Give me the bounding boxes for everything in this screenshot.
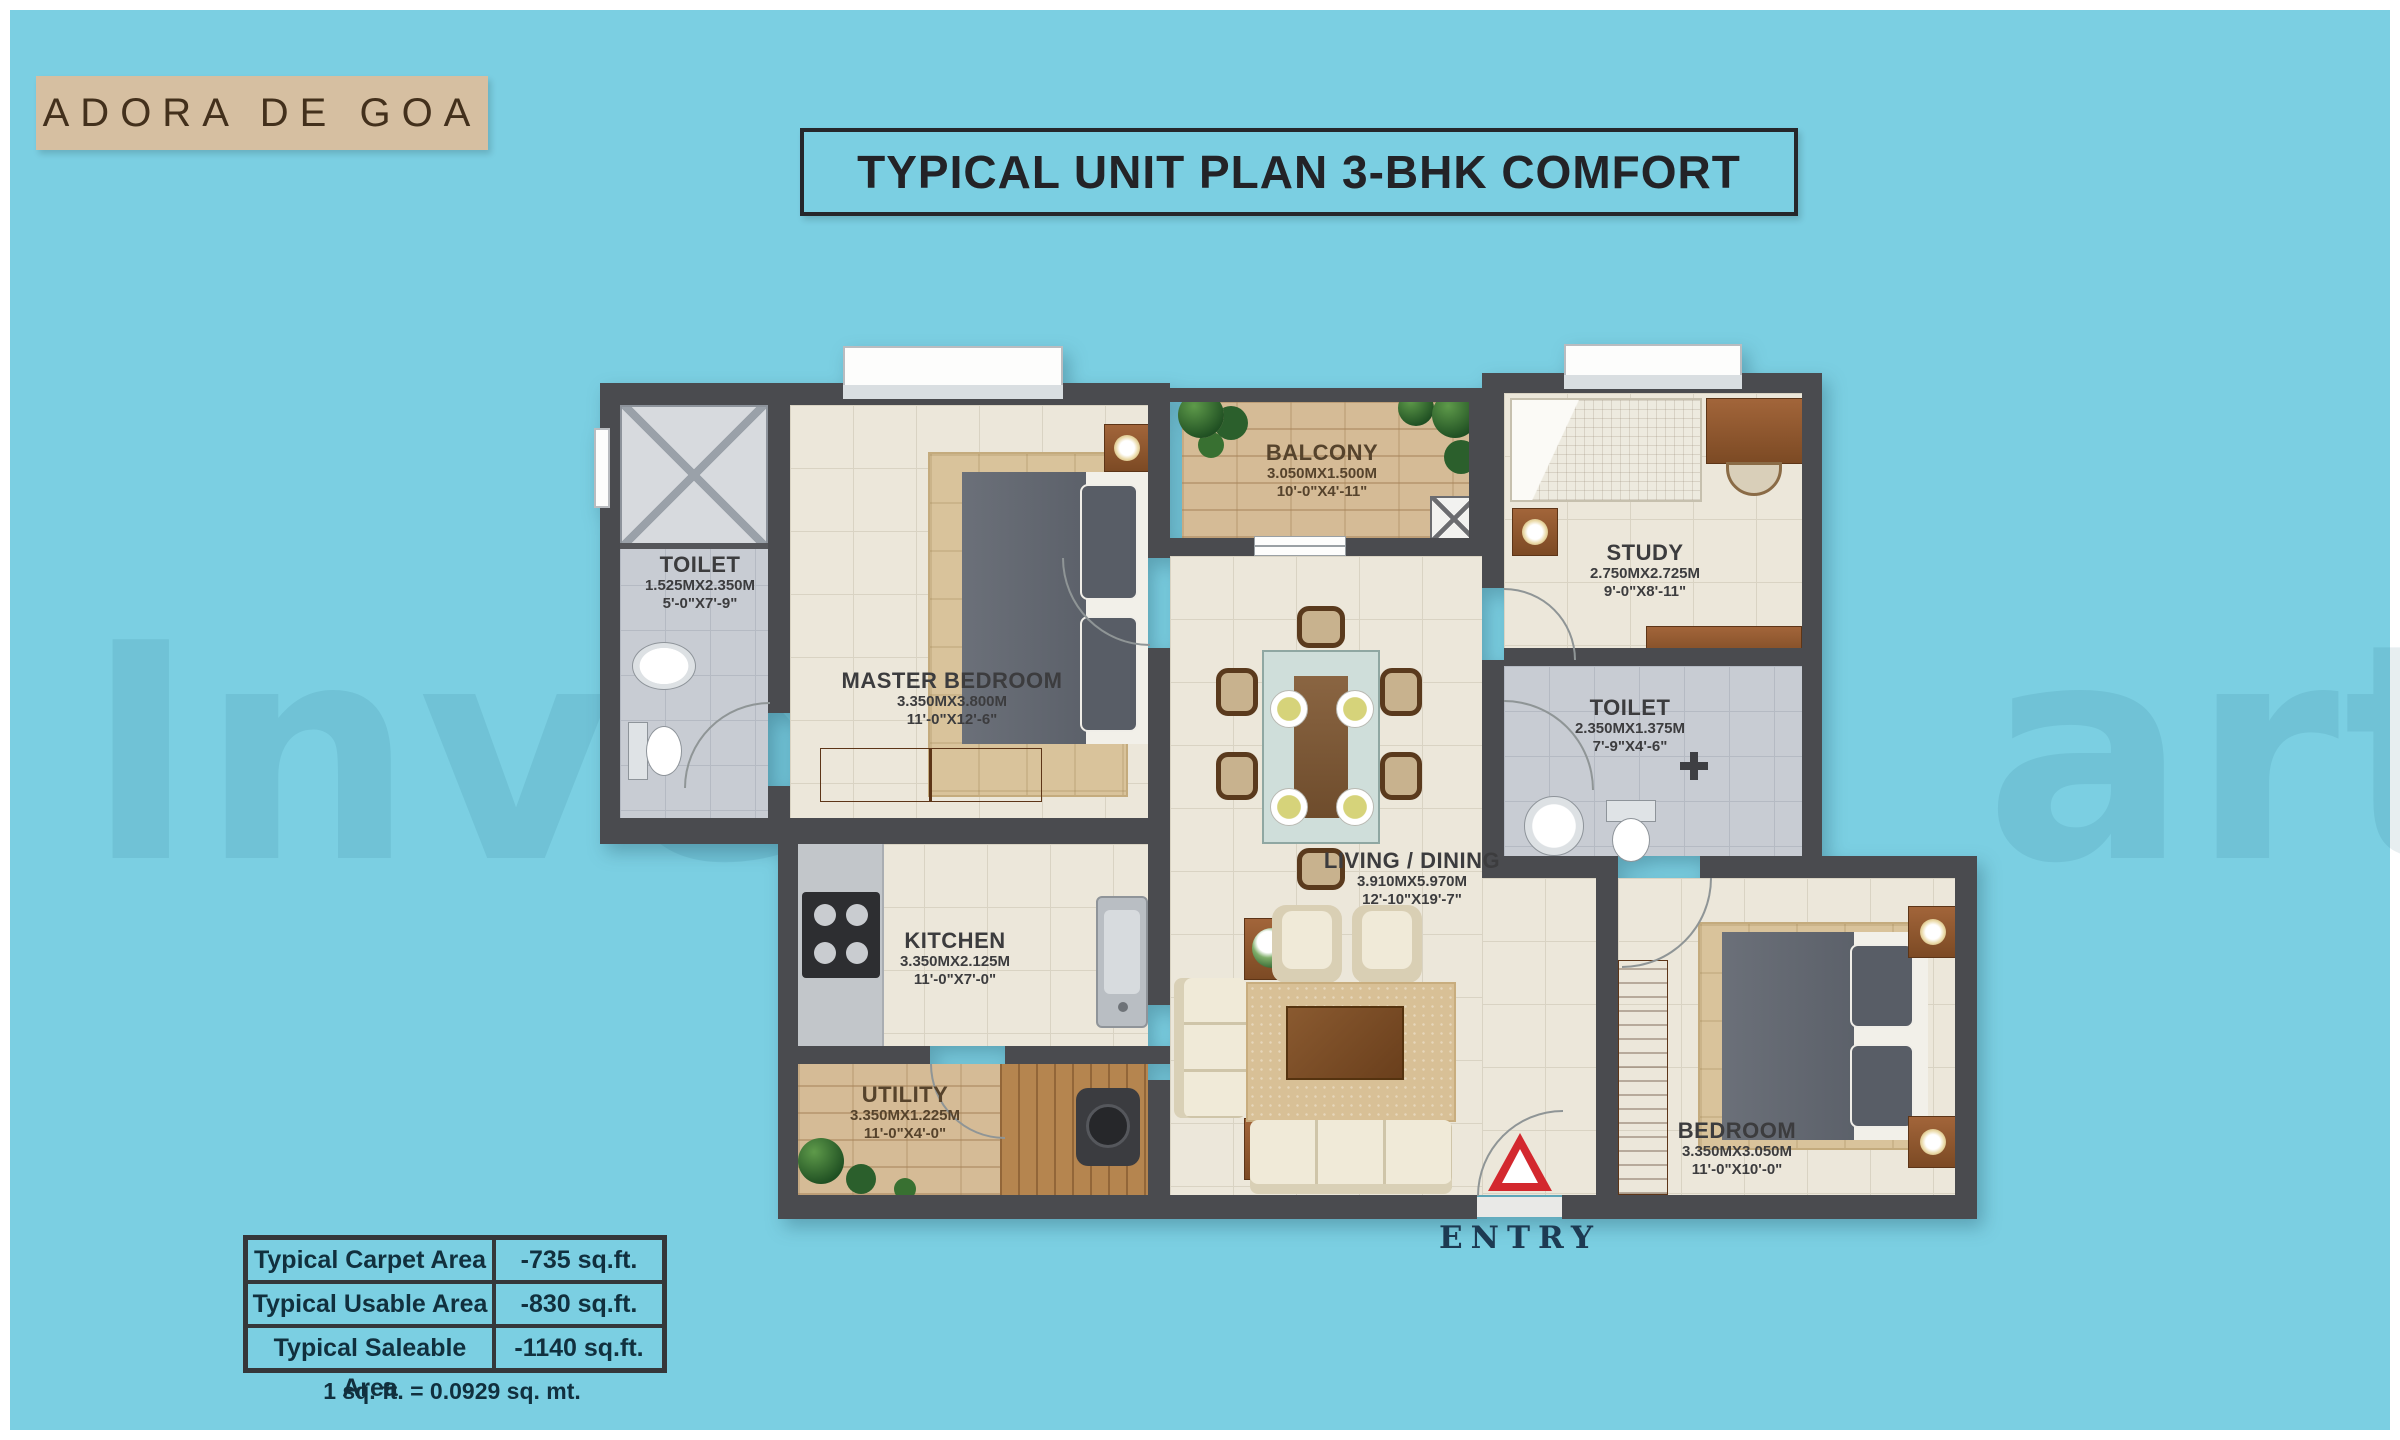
sofa-vertical: [1174, 978, 1246, 1118]
area-table-value: -830 sq.ft.: [494, 1282, 664, 1326]
armchair-cushion: [1282, 911, 1332, 969]
shower-partition: [620, 543, 768, 549]
armchair: [1272, 905, 1342, 983]
kitchen-sink: [1096, 896, 1148, 1028]
bedroom-lamp: [1920, 919, 1946, 945]
wall: [1482, 660, 1504, 878]
area-table: Typical Carpet Area -735 sq.ft. Typical …: [243, 1235, 667, 1373]
shower-symbol: [1690, 752, 1698, 780]
area-table-value: -1140 sq.ft.: [494, 1326, 664, 1370]
wall: [778, 1046, 930, 1064]
window: [594, 428, 610, 508]
study-bed-blanket: [1512, 400, 1586, 500]
wall: [1148, 648, 1170, 844]
brand-logo: ADORA DE GOA: [36, 76, 488, 150]
wall: [778, 1195, 1170, 1219]
wall: [1148, 1080, 1170, 1195]
window: [843, 346, 1063, 388]
wall: [1802, 373, 1822, 878]
brand-logo-text: ADORA DE GOA: [43, 91, 482, 136]
wall: [768, 383, 790, 713]
entry-threshold: [1477, 1197, 1562, 1217]
plan-title: TYPICAL UNIT PLAN 3-BHK COMFORT: [800, 128, 1798, 216]
balcony-railing: [1168, 388, 1483, 402]
master-wardrobe: [820, 748, 1042, 802]
room-label-study: STUDY 2.750MX2.725M 9'-0"X8'-11": [1535, 540, 1755, 600]
wall: [1596, 1195, 1977, 1219]
wall: [1482, 373, 1504, 588]
room-label-toilet1: TOILET 1.525MX2.350M 5'-0"X7'-9": [600, 552, 800, 612]
armchair: [1352, 905, 1422, 983]
wall: [600, 818, 1170, 844]
wc-tank: [628, 722, 648, 780]
room-label-balcony: BALCONY 3.050MX1.500M 10'-0"X4'-11": [1202, 440, 1442, 500]
armchair-cushion: [1362, 911, 1412, 969]
conversion-note: 1 sq. ft. = 0.0929 sq. mt.: [243, 1378, 661, 1405]
wall: [768, 786, 790, 844]
window-sill: [1564, 375, 1742, 389]
balcony-railing: [1469, 388, 1483, 550]
wall: [1344, 538, 1483, 556]
sliding-door-track: [1255, 545, 1345, 547]
entry-label: ENTRY: [1430, 1220, 1610, 1256]
sink-basin: [1104, 910, 1140, 994]
bedroom-bed-pillow: [1850, 944, 1914, 1028]
room-label-kitchen: KITCHEN 3.350MX2.125M 11'-0"X7'-0": [835, 928, 1075, 988]
dining-plate: [1336, 690, 1374, 728]
wall: [1596, 856, 1618, 1219]
washbasin: [632, 642, 696, 690]
dining-plate: [1336, 788, 1374, 826]
dining-chair: [1380, 752, 1422, 800]
utility-plant: [798, 1138, 844, 1184]
shower-area: [620, 405, 768, 545]
wall: [778, 844, 798, 1219]
study-bed: [1510, 398, 1702, 502]
area-table-value: -735 sq.ft.: [494, 1238, 664, 1282]
floor-plan: [0, 0, 2400, 1440]
room-label-toilet2: TOILET 2.350MX1.375M 7'-9"X4'-6": [1520, 695, 1740, 755]
room-label-living-dining: LIVING / DINING 3.910MX5.970M 12'-10"X19…: [1272, 848, 1552, 908]
utility-basin: [1076, 1088, 1140, 1166]
hob-burner: [814, 904, 836, 926]
sliding-door: [1254, 536, 1346, 556]
wall: [1955, 856, 1977, 1219]
bedroom-bed-duvet: [1722, 932, 1854, 1140]
bedroom-bed: [1722, 932, 1928, 1140]
bedroom-lamp: [1920, 1129, 1946, 1155]
wall: [1005, 1046, 1170, 1064]
area-table-label: Typical Carpet Area: [246, 1238, 494, 1282]
dining-chair: [1216, 752, 1258, 800]
wall: [1168, 1195, 1477, 1219]
sofa-horizontal: [1250, 1120, 1452, 1194]
page: Inve art ADORA DE GOA TYPICAL UNIT PLAN …: [0, 0, 2400, 1440]
study-desk: [1706, 398, 1804, 464]
area-table-label: Typical Usable Area: [246, 1282, 494, 1326]
wall: [1700, 856, 1977, 878]
washbasin: [1524, 796, 1584, 856]
dining-chair: [1216, 668, 1258, 716]
wall: [1148, 383, 1170, 558]
master-lamp: [1114, 435, 1140, 461]
window-sill: [843, 385, 1063, 399]
wall: [1148, 844, 1170, 1005]
room-label-utility: UTILITY 3.350MX1.225M 11'-0"X4'-0": [785, 1082, 1025, 1142]
room-label-master-bedroom: MASTER BEDROOM 3.350MX3.800M 11'-0"X12'-…: [822, 668, 1082, 728]
dining-chair: [1297, 606, 1345, 648]
wc-bowl: [646, 726, 682, 776]
plan-title-text: TYPICAL UNIT PLAN 3-BHK COMFORT: [857, 145, 1741, 199]
bedroom-bed-pillow: [1850, 1044, 1914, 1128]
dining-plate: [1270, 690, 1308, 728]
dining-chair: [1380, 668, 1422, 716]
area-table-label: Typical Saleable Area: [246, 1326, 494, 1370]
wall: [1168, 538, 1256, 556]
room-label-bedroom: BEDROOM 3.350MX3.050M 11'-0"X10'-0": [1617, 1118, 1857, 1178]
utility-basin-bowl: [1086, 1104, 1130, 1148]
dining-plate: [1270, 788, 1308, 826]
sink-faucet: [1118, 1002, 1128, 1012]
coffee-table: [1286, 1006, 1404, 1080]
